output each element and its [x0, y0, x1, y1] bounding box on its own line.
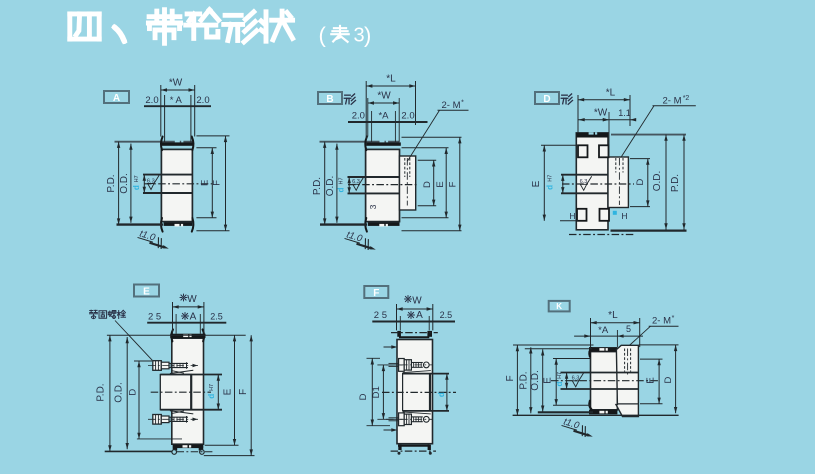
svg-text:5: 5	[626, 324, 631, 334]
svg-text:*L: *L	[608, 310, 618, 321]
svg-text:B: B	[326, 94, 333, 105]
svg-text:d: d	[546, 185, 555, 190]
svg-text:* A: * A	[170, 95, 183, 106]
svg-text:*2: *2	[683, 95, 690, 102]
svg-text:E: E	[222, 388, 233, 395]
svg-text:3: 3	[354, 25, 365, 47]
svg-text:O.D.: O.D.	[652, 171, 663, 192]
svg-text:D: D	[543, 94, 550, 105]
svg-text:*A: *A	[378, 111, 389, 122]
svg-text:2- M: 2- M	[663, 96, 682, 107]
svg-text:2- M: 2- M	[652, 315, 671, 326]
svg-text:E: E	[143, 286, 150, 297]
svg-text:*: *	[461, 100, 464, 107]
svg-text:2.0: 2.0	[145, 95, 158, 106]
svg-text:E: E	[531, 180, 542, 187]
svg-text:P.D.: P.D.	[670, 174, 681, 192]
svg-text:H: H	[569, 211, 575, 221]
svg-text:K: K	[556, 302, 562, 311]
svg-text:A: A	[190, 311, 197, 322]
svg-text:H7: H7	[339, 177, 345, 184]
svg-text:A: A	[416, 310, 423, 321]
svg-text:): )	[364, 23, 371, 48]
svg-text:D: D	[422, 181, 433, 188]
svg-text:P.D.: P.D.	[106, 174, 117, 192]
svg-text:d: d	[207, 394, 216, 399]
svg-text:*W: *W	[377, 90, 391, 101]
svg-text:A: A	[113, 93, 120, 104]
svg-text:O.D.: O.D.	[114, 382, 125, 403]
svg-text:H7: H7	[557, 372, 563, 379]
svg-text:F: F	[448, 181, 459, 187]
svg-text:2.0: 2.0	[401, 111, 414, 122]
svg-text:*A: *A	[598, 325, 609, 336]
svg-text:W: W	[412, 296, 422, 307]
svg-text:d: d	[437, 392, 446, 397]
svg-text:O.D.: O.D.	[325, 176, 336, 197]
svg-text:3: 3	[368, 204, 378, 209]
svg-text:d: d	[337, 187, 346, 192]
svg-text:F: F	[238, 389, 249, 395]
svg-text:P.D.: P.D.	[96, 383, 107, 401]
svg-text:*W: *W	[594, 107, 608, 118]
svg-text:2.0: 2.0	[196, 95, 209, 106]
svg-text:P.D.: P.D.	[518, 371, 529, 389]
svg-text:D: D	[663, 376, 674, 383]
svg-text:E: E	[435, 181, 446, 187]
svg-text:D: D	[635, 178, 646, 185]
svg-text:F: F	[373, 288, 379, 299]
svg-text:E: E	[543, 377, 554, 384]
svg-text:2 5: 2 5	[148, 311, 161, 322]
svg-text:t1.0: t1.0	[345, 229, 364, 244]
svg-text:F: F	[212, 180, 223, 186]
svg-text:O.D.: O.D.	[119, 173, 130, 194]
svg-text:*: *	[672, 315, 675, 322]
svg-text:*L: *L	[606, 87, 616, 98]
svg-text:t1.0: t1.0	[138, 228, 157, 243]
svg-text:P.D.: P.D.	[312, 177, 323, 195]
svg-text:E: E	[200, 180, 211, 186]
svg-text:H7: H7	[134, 175, 140, 182]
svg-text:H: H	[621, 211, 627, 221]
svg-text:D: D	[358, 393, 369, 400]
svg-text:t1.0: t1.0	[562, 416, 581, 431]
svg-text:1.1: 1.1	[618, 108, 631, 118]
svg-text:2.5: 2.5	[210, 311, 223, 321]
svg-text:2- M: 2- M	[442, 100, 461, 111]
svg-text:H7: H7	[209, 384, 215, 391]
svg-text:W: W	[187, 294, 197, 305]
svg-text:F: F	[505, 375, 516, 381]
svg-text:H7: H7	[548, 175, 554, 182]
svg-text:2.5: 2.5	[440, 310, 453, 320]
svg-text:O.D.: O.D.	[530, 370, 541, 391]
svg-text:D: D	[127, 389, 138, 396]
svg-text:*L: *L	[386, 74, 396, 85]
svg-text:*W: *W	[169, 77, 183, 88]
svg-text:d: d	[132, 185, 141, 190]
svg-text:(: (	[319, 23, 327, 48]
svg-text:2 5: 2 5	[374, 310, 387, 321]
svg-text:2.0: 2.0	[352, 111, 365, 122]
svg-text:E: E	[645, 377, 656, 384]
